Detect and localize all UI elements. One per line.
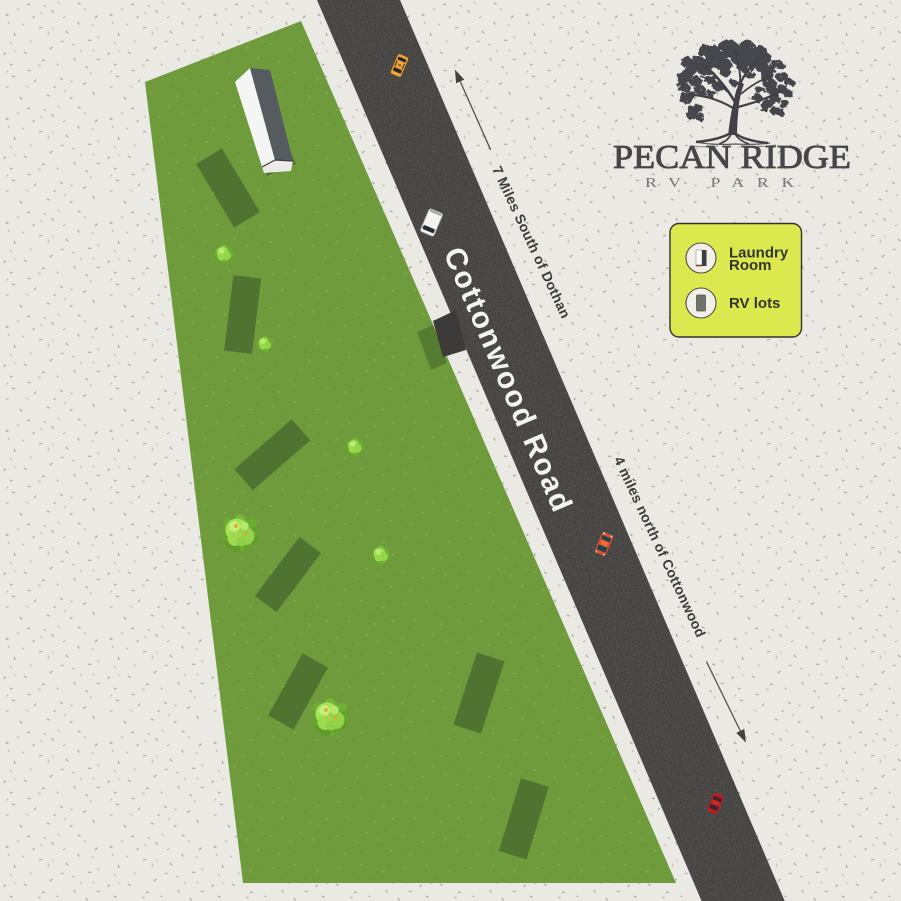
svg-text:RV lots: RV lots [729, 295, 780, 312]
svg-text:RV PARK: RV PARK [645, 176, 807, 191]
svg-text:PECAN RIDGE: PECAN RIDGE [613, 139, 851, 176]
svg-text:Room: Room [729, 257, 772, 274]
